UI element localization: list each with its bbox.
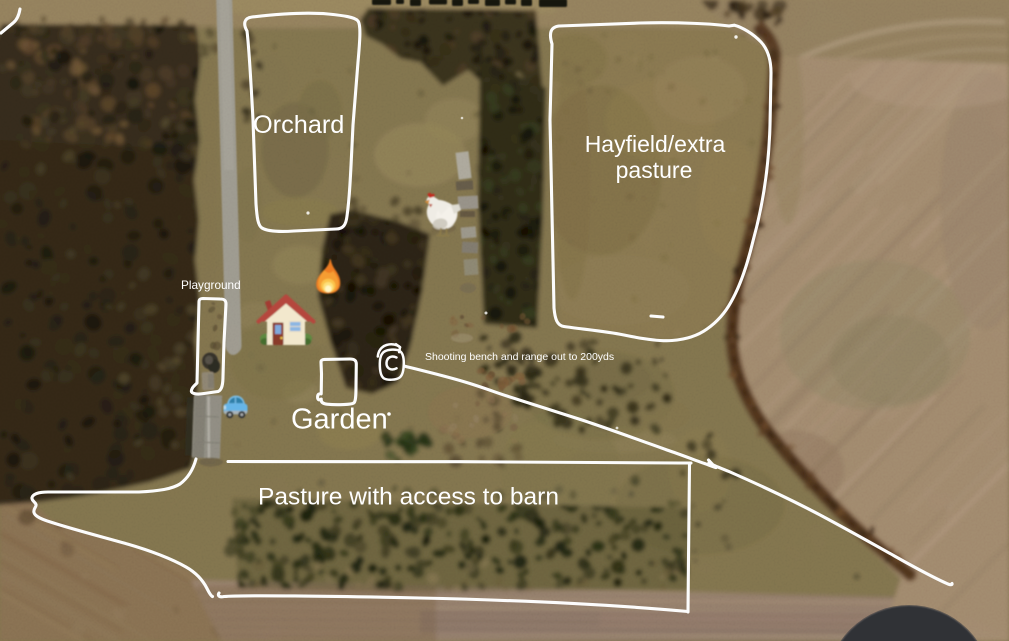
svg-text:Hayfield/extra: Hayfield/extra — [585, 131, 726, 157]
svg-text:Pasture with access to barn: Pasture with access to barn — [258, 484, 559, 511]
svg-text:Orchard: Orchard — [253, 111, 344, 139]
svg-text:Shooting bench and range out t: Shooting bench and range out to 200yds — [425, 351, 614, 363]
svg-text:Garden: Garden — [291, 404, 388, 436]
svg-text:pasture: pasture — [616, 157, 693, 183]
svg-text:Playground: Playground — [181, 278, 241, 292]
